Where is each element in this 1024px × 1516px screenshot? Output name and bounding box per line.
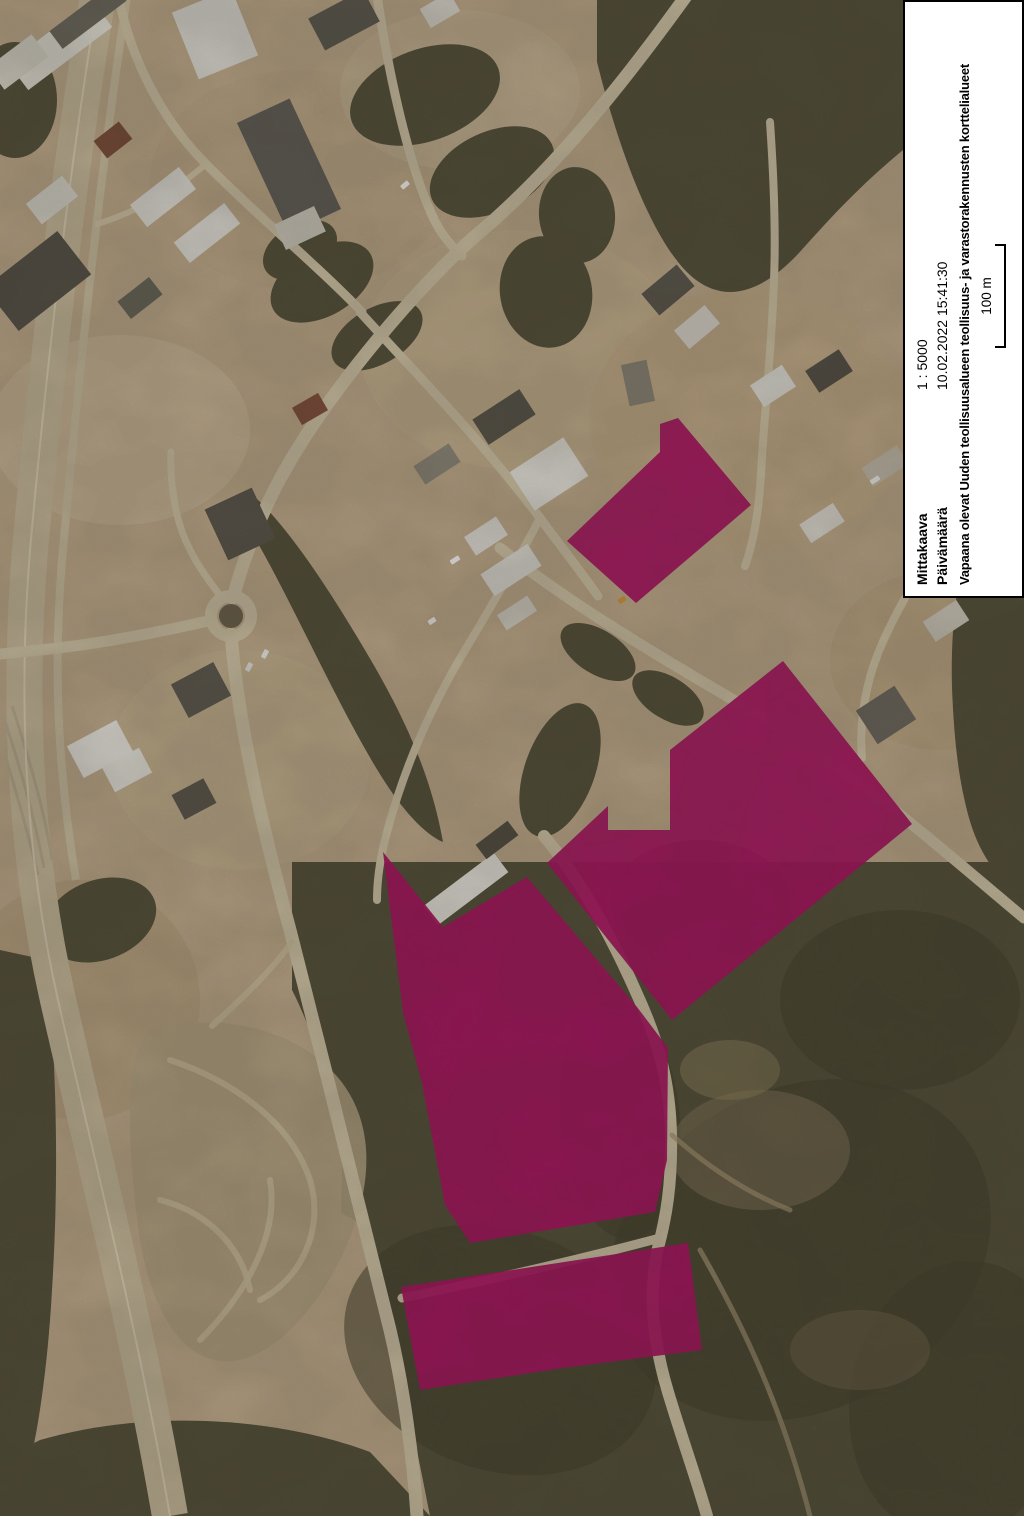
map-description: Vapaana olevat Uuden teollisuusalueen te… bbox=[956, 10, 974, 585]
info-panel: Mittakaava 1 : 5000 Päivämäärä 10.02.202… bbox=[903, 0, 1024, 598]
info-panel-content: Mittakaava 1 : 5000 Päivämäärä 10.02.202… bbox=[905, 2, 1020, 593]
date-value: 10.02.2022 15:41:30 bbox=[932, 262, 952, 390]
date-row: Päivämäärä 10.02.2022 15:41:30 bbox=[932, 10, 952, 585]
photo-grain-overlay bbox=[0, 0, 1024, 1516]
scale-value: 1 : 5000 bbox=[912, 339, 932, 390]
scale-bar-label: 100 m bbox=[979, 244, 994, 348]
map-viewport[interactable]: Mittakaava 1 : 5000 Päivämäärä 10.02.202… bbox=[0, 0, 1024, 1516]
scale-bar-bracket bbox=[995, 244, 1006, 348]
map-canvas[interactable] bbox=[0, 0, 1024, 1516]
date-label: Päivämäärä bbox=[932, 390, 952, 585]
scale-row: Mittakaava 1 : 5000 bbox=[912, 10, 932, 585]
scale-bar: 100 m bbox=[979, 244, 1006, 348]
scale-label: Mittakaava bbox=[912, 390, 932, 585]
